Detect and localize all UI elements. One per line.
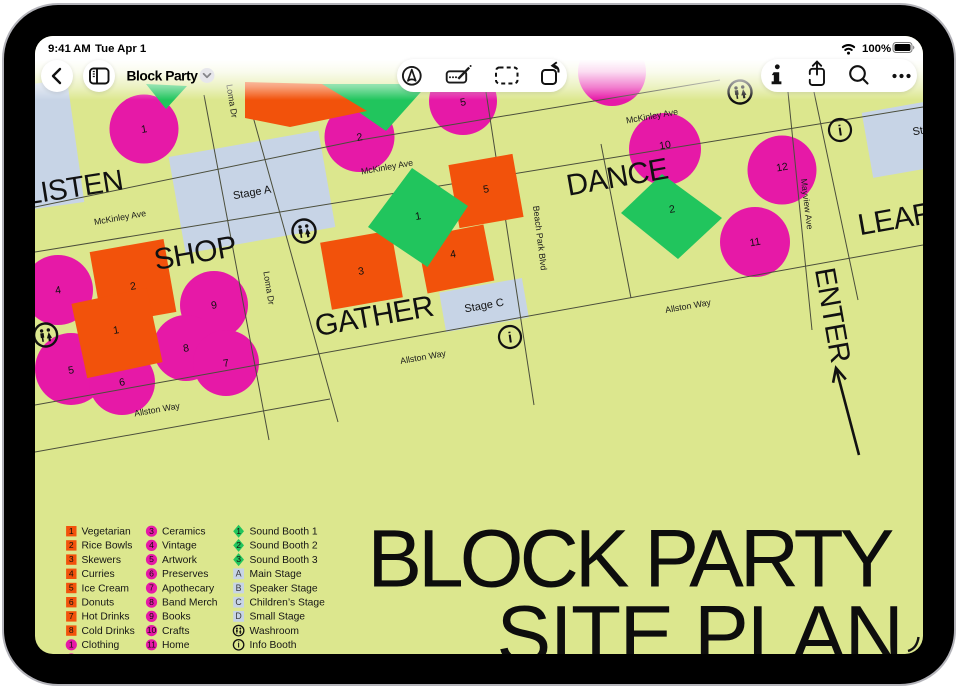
svg-text:Band Merch: Band Merch (162, 598, 218, 609)
svg-text:4: 4 (69, 568, 74, 578)
svg-text:Ice Cream: Ice Cream (82, 583, 130, 594)
svg-text:5: 5 (69, 583, 74, 593)
svg-text:LEARN: LEARN (855, 193, 923, 242)
svg-text:Main Stage: Main Stage (250, 569, 302, 580)
svg-text:ENTER: ENTER (808, 265, 856, 365)
svg-text:6: 6 (69, 597, 74, 607)
svg-text:i: i (237, 641, 239, 650)
svg-text:11: 11 (147, 639, 156, 649)
svg-text:Home: Home (162, 640, 190, 651)
svg-text:Cold Drinks: Cold Drinks (82, 626, 135, 637)
svg-text:1: 1 (69, 639, 74, 649)
svg-text:Books: Books (162, 612, 191, 623)
svg-text:McKinley Ave: McKinley Ave (93, 208, 147, 227)
svg-text:B: B (236, 583, 242, 593)
svg-text:Beach Park Blvd: Beach Park Blvd (531, 205, 549, 271)
svg-text:7: 7 (149, 583, 154, 593)
svg-text:2: 2 (69, 540, 74, 550)
svg-text:Ceramics: Ceramics (162, 527, 205, 538)
svg-text:10: 10 (658, 139, 672, 153)
svg-text:Sound Booth 3: Sound Booth 3 (250, 555, 318, 566)
svg-text:Sound Booth 2: Sound Booth 2 (250, 541, 318, 552)
svg-text:3: 3 (69, 554, 74, 564)
svg-text:8: 8 (69, 625, 74, 635)
svg-text:Preserves: Preserves (162, 569, 208, 580)
svg-text:SITE PLAN: SITE PLAN (497, 590, 903, 654)
svg-text:9: 9 (149, 611, 154, 621)
svg-text:Vintage: Vintage (162, 541, 197, 552)
svg-text:Rice Bowls: Rice Bowls (82, 541, 133, 552)
svg-text:Curries: Curries (82, 569, 115, 580)
svg-text:Artwork: Artwork (162, 555, 198, 566)
svg-text:3: 3 (236, 554, 241, 564)
svg-text:4: 4 (149, 540, 154, 550)
svg-text:A: A (236, 569, 242, 579)
svg-text:7: 7 (69, 611, 74, 621)
svg-text:Allston Way: Allston Way (664, 297, 712, 315)
svg-text:Skewers: Skewers (82, 555, 121, 566)
svg-text:Clothing: Clothing (82, 640, 120, 651)
svg-text:D: D (235, 611, 241, 621)
svg-text:Small Stage: Small Stage (250, 612, 306, 623)
svg-text:12: 12 (775, 161, 789, 175)
svg-text:Washroom: Washroom (250, 626, 299, 637)
svg-text:Apothecary: Apothecary (162, 583, 215, 594)
svg-text:Block Party: Block Party (127, 69, 199, 84)
svg-text:1: 1 (69, 526, 74, 536)
svg-text:8: 8 (149, 597, 154, 607)
svg-text:Children’s Stage: Children’s Stage (250, 598, 326, 609)
svg-text:6: 6 (149, 568, 154, 578)
svg-text:2: 2 (236, 540, 241, 550)
svg-text:5: 5 (149, 554, 154, 564)
svg-text:Vegetarian: Vegetarian (82, 527, 132, 538)
svg-text:10: 10 (147, 625, 157, 635)
svg-text:Allston Way: Allston Way (399, 348, 447, 366)
svg-text:1: 1 (236, 526, 241, 536)
svg-text:C: C (235, 597, 242, 607)
svg-text:Hot Drinks: Hot Drinks (82, 612, 130, 623)
svg-text:i: i (507, 329, 513, 346)
svg-text:Info Booth: Info Booth (250, 640, 297, 651)
svg-text:Speaker Stage: Speaker Stage (250, 583, 318, 594)
svg-text:SHOP: SHOP (152, 230, 240, 277)
svg-text:3: 3 (149, 526, 154, 536)
svg-text:Loma Dr: Loma Dr (261, 271, 276, 306)
svg-text:Donuts: Donuts (82, 598, 115, 609)
svg-text:Sound Booth 1: Sound Booth 1 (250, 527, 318, 538)
svg-text:11: 11 (749, 236, 762, 250)
svg-text:Crafts: Crafts (162, 626, 189, 637)
